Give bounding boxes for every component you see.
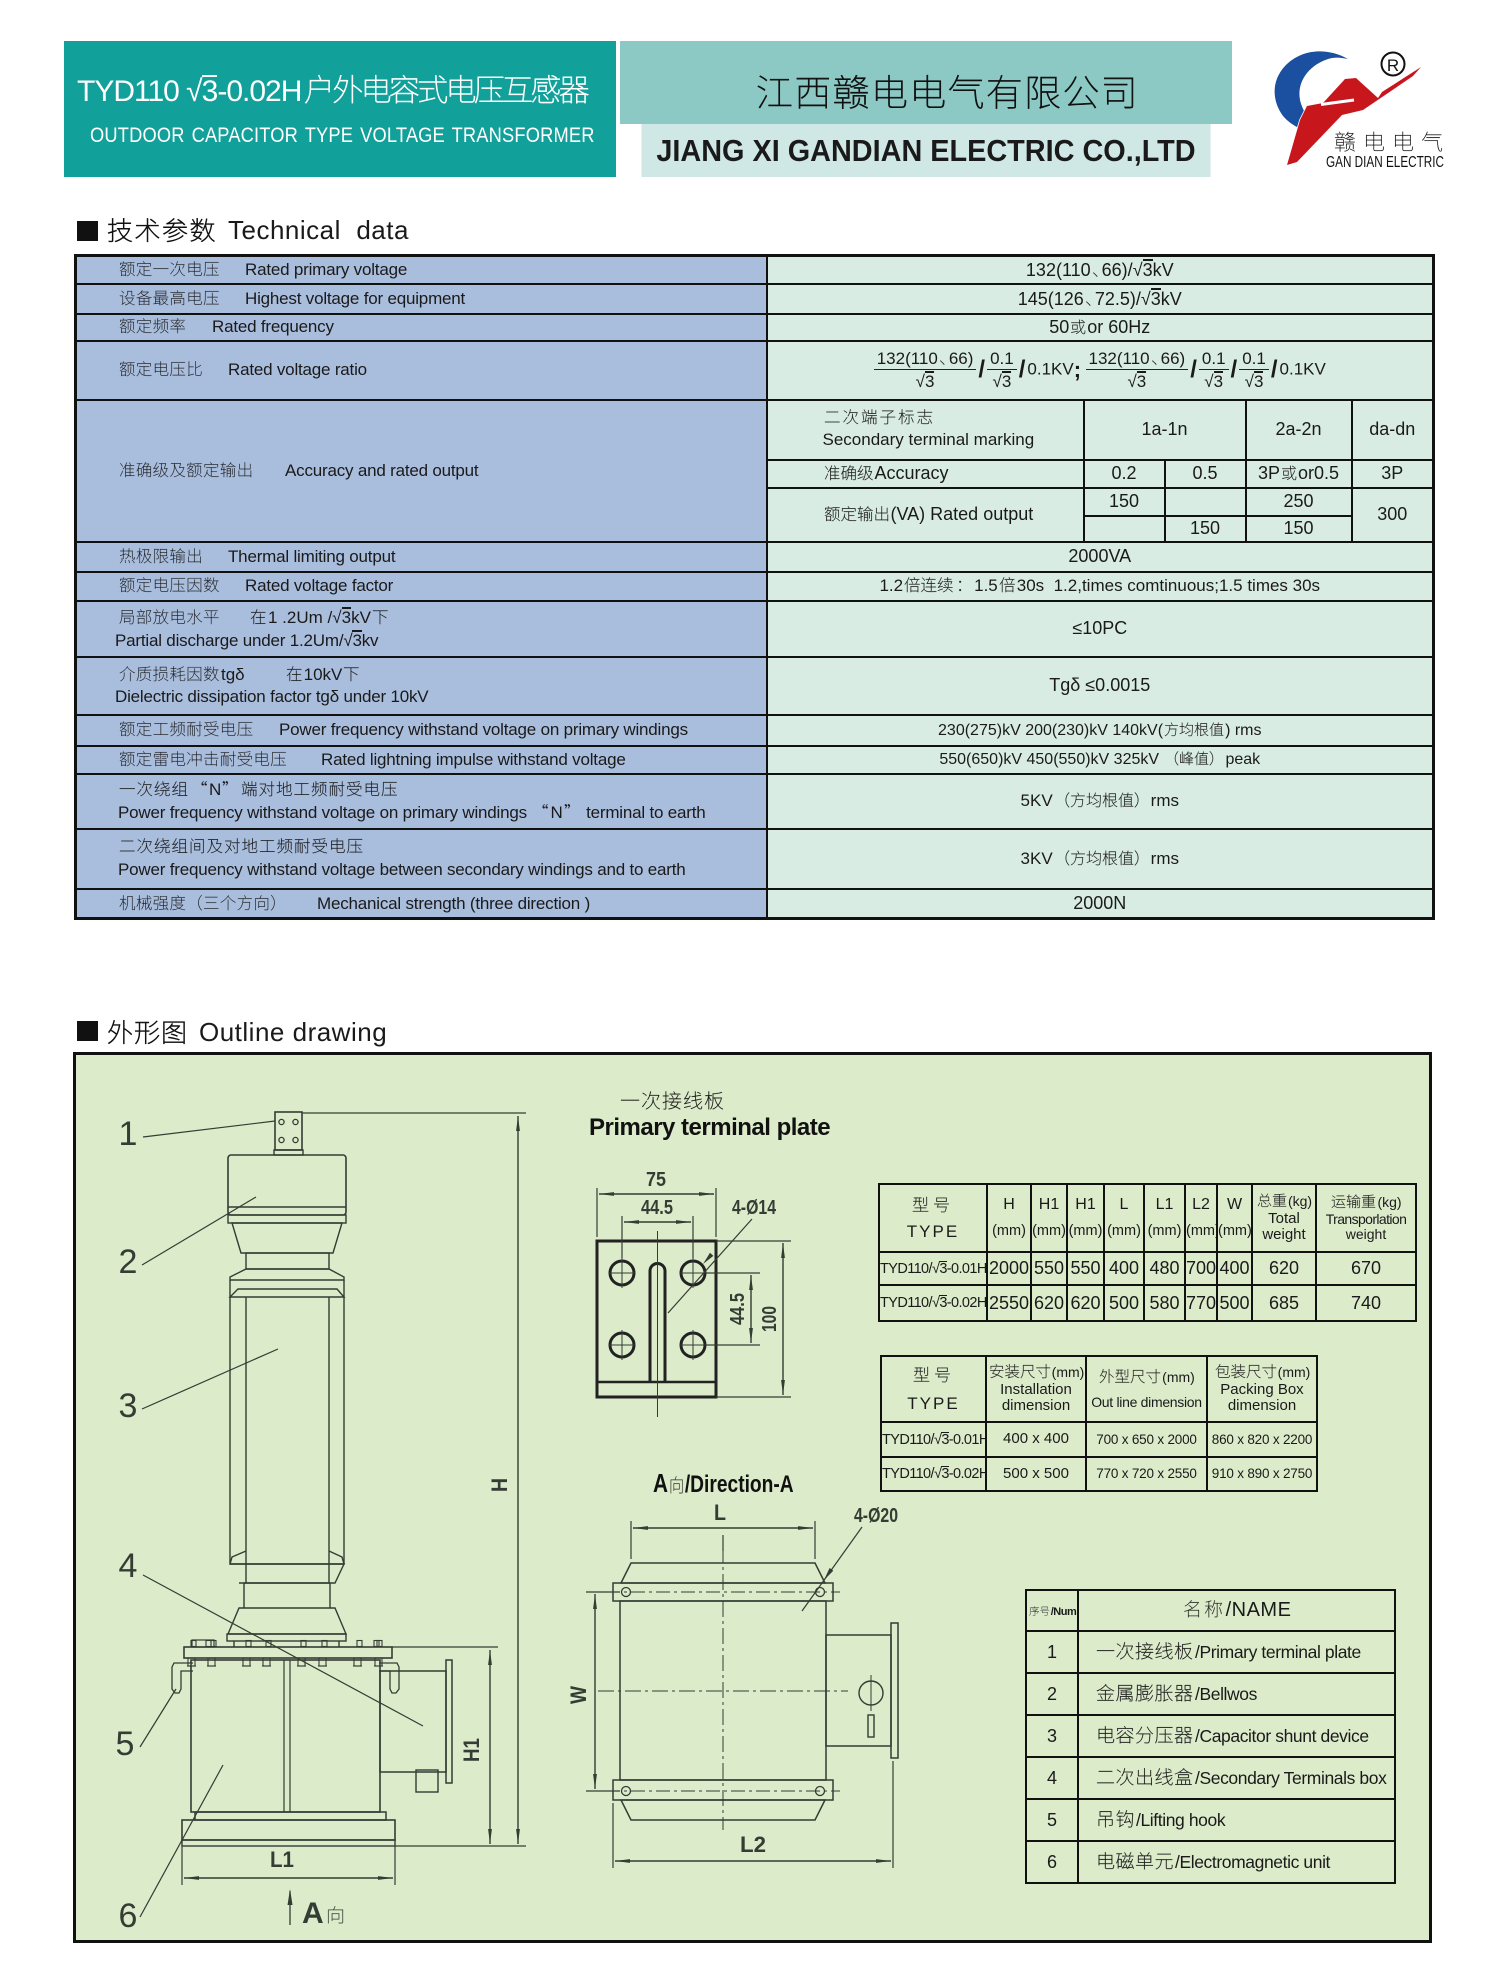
svg-text:4-Ø20: 4-Ø20 [854, 1505, 898, 1527]
svg-text:A: A [302, 1897, 324, 1930]
svg-text:L1: L1 [270, 1847, 294, 1872]
svg-text:4-Ø14: 4-Ø14 [732, 1197, 777, 1219]
svg-text:1: 1 [119, 1115, 138, 1153]
svg-text:44.5: 44.5 [641, 1197, 673, 1219]
svg-text:2: 2 [119, 1243, 138, 1281]
svg-text:H1: H1 [459, 1738, 484, 1762]
svg-text:3: 3 [119, 1387, 138, 1425]
svg-text:L2: L2 [740, 1832, 766, 1857]
svg-text:6: 6 [119, 1897, 138, 1935]
svg-text:5: 5 [116, 1725, 135, 1763]
svg-text:H: H [487, 1478, 512, 1492]
svg-text:4: 4 [119, 1547, 138, 1585]
svg-text:W: W [566, 1686, 591, 1704]
svg-text:44.5: 44.5 [727, 1293, 749, 1325]
svg-text:75: 75 [646, 1169, 666, 1191]
svg-text:100: 100 [759, 1306, 781, 1332]
svg-text:L: L [714, 1500, 726, 1525]
svg-text:R: R [1387, 56, 1399, 75]
svg-text:GAN DIAN ELECTRIC: GAN DIAN ELECTRIC [1326, 154, 1444, 171]
